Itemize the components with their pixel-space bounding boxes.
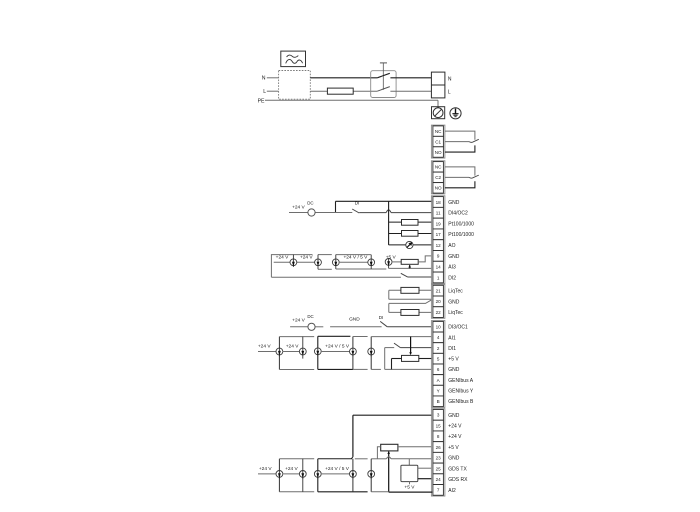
- svg-text:GND: GND: [448, 299, 460, 305]
- svg-text:9: 9: [437, 254, 440, 259]
- svg-text:+5 V: +5 V: [448, 445, 459, 451]
- svg-text:+5 V: +5 V: [404, 485, 415, 491]
- svg-text:25: 25: [436, 466, 442, 471]
- svg-text:4: 4: [437, 335, 440, 340]
- svg-text:GENIbus A: GENIbus A: [448, 378, 473, 384]
- svg-text:NO: NO: [435, 150, 442, 155]
- svg-text:DC: DC: [307, 200, 313, 205]
- svg-text:21: 21: [436, 288, 442, 293]
- svg-text:DI2: DI2: [448, 275, 456, 281]
- svg-text:19: 19: [436, 221, 442, 226]
- svg-text:10: 10: [436, 325, 442, 330]
- svg-text:+24 V: +24 V: [285, 466, 298, 472]
- svg-text:26: 26: [436, 445, 442, 450]
- svg-text:C2: C2: [435, 175, 441, 180]
- svg-text:AI1: AI1: [448, 335, 456, 341]
- svg-text:+5 V: +5 V: [448, 357, 459, 363]
- svg-text:GDS TX: GDS TX: [448, 466, 467, 472]
- svg-text:+24 V: +24 V: [259, 466, 272, 472]
- svg-text:18: 18: [436, 200, 442, 205]
- svg-text:1: 1: [437, 275, 440, 280]
- svg-text:+24 V: +24 V: [448, 434, 462, 440]
- svg-text:GND: GND: [448, 254, 460, 260]
- svg-text:GND: GND: [448, 200, 460, 206]
- svg-text:7: 7: [437, 488, 440, 493]
- svg-text:15: 15: [436, 423, 442, 428]
- svg-text:DI1: DI1: [448, 346, 456, 352]
- svg-text:+24 V: +24 V: [286, 343, 299, 349]
- svg-text:GDS RX: GDS RX: [448, 477, 468, 483]
- svg-text:12: 12: [436, 243, 442, 248]
- svg-text:NO: NO: [435, 186, 442, 191]
- svg-text:GENIbus B: GENIbus B: [448, 399, 474, 405]
- svg-text:GND: GND: [448, 413, 460, 419]
- svg-text:Y: Y: [437, 388, 440, 393]
- svg-text:LiqTec: LiqTec: [448, 310, 463, 316]
- svg-text:N: N: [448, 76, 452, 82]
- svg-text:B: B: [437, 399, 440, 404]
- svg-text:C1: C1: [435, 139, 441, 144]
- svg-text:24: 24: [436, 477, 442, 482]
- svg-text:AO: AO: [448, 243, 455, 249]
- svg-text:NC: NC: [435, 165, 442, 170]
- svg-text:+24 V: +24 V: [276, 255, 289, 261]
- svg-text:+24 V / 5 V: +24 V / 5 V: [325, 343, 350, 349]
- svg-text:LiqTec: LiqTec: [448, 289, 463, 295]
- svg-text:+24 V: +24 V: [292, 204, 305, 210]
- svg-text:AI2: AI2: [448, 488, 456, 494]
- svg-text:L: L: [448, 89, 451, 95]
- svg-text:17: 17: [436, 232, 442, 237]
- svg-text:3: 3: [437, 413, 440, 418]
- svg-text:+24 V: +24 V: [448, 423, 462, 429]
- svg-text:N: N: [262, 76, 266, 82]
- svg-text:DI: DI: [355, 201, 360, 206]
- svg-text:DI3/OC1: DI3/OC1: [448, 325, 468, 331]
- svg-text:+24 V / 5 V: +24 V / 5 V: [325, 466, 350, 472]
- svg-text:GND: GND: [349, 317, 360, 323]
- svg-text:DC: DC: [307, 314, 313, 319]
- svg-text:23: 23: [436, 456, 442, 461]
- svg-text:14: 14: [436, 264, 442, 269]
- svg-text:11: 11: [436, 211, 441, 216]
- svg-text:Pt100/1000: Pt100/1000: [448, 221, 474, 227]
- svg-text:GND: GND: [448, 456, 460, 462]
- svg-text:GND: GND: [448, 367, 460, 373]
- svg-text:+24 V: +24 V: [300, 255, 313, 261]
- svg-text:+24 V: +24 V: [292, 318, 305, 324]
- svg-text:DI4/OC2: DI4/OC2: [448, 211, 468, 217]
- svg-text:6: 6: [437, 367, 440, 372]
- svg-text:+24 V: +24 V: [258, 343, 271, 349]
- svg-text:Pt100/1000: Pt100/1000: [448, 232, 474, 238]
- svg-text:L: L: [263, 89, 266, 95]
- svg-text:GENIbus Y: GENIbus Y: [448, 389, 474, 395]
- svg-text:+24 V / 5 V: +24 V / 5 V: [343, 255, 368, 261]
- svg-text:20: 20: [436, 299, 442, 304]
- svg-text:8: 8: [437, 434, 440, 439]
- svg-text:22: 22: [436, 310, 442, 315]
- svg-text:AI3: AI3: [448, 265, 456, 271]
- svg-text:NC: NC: [435, 129, 442, 134]
- svg-text:DI: DI: [379, 315, 384, 320]
- svg-text:2: 2: [437, 346, 440, 351]
- svg-text:PE: PE: [258, 98, 265, 104]
- svg-text:5: 5: [437, 356, 440, 361]
